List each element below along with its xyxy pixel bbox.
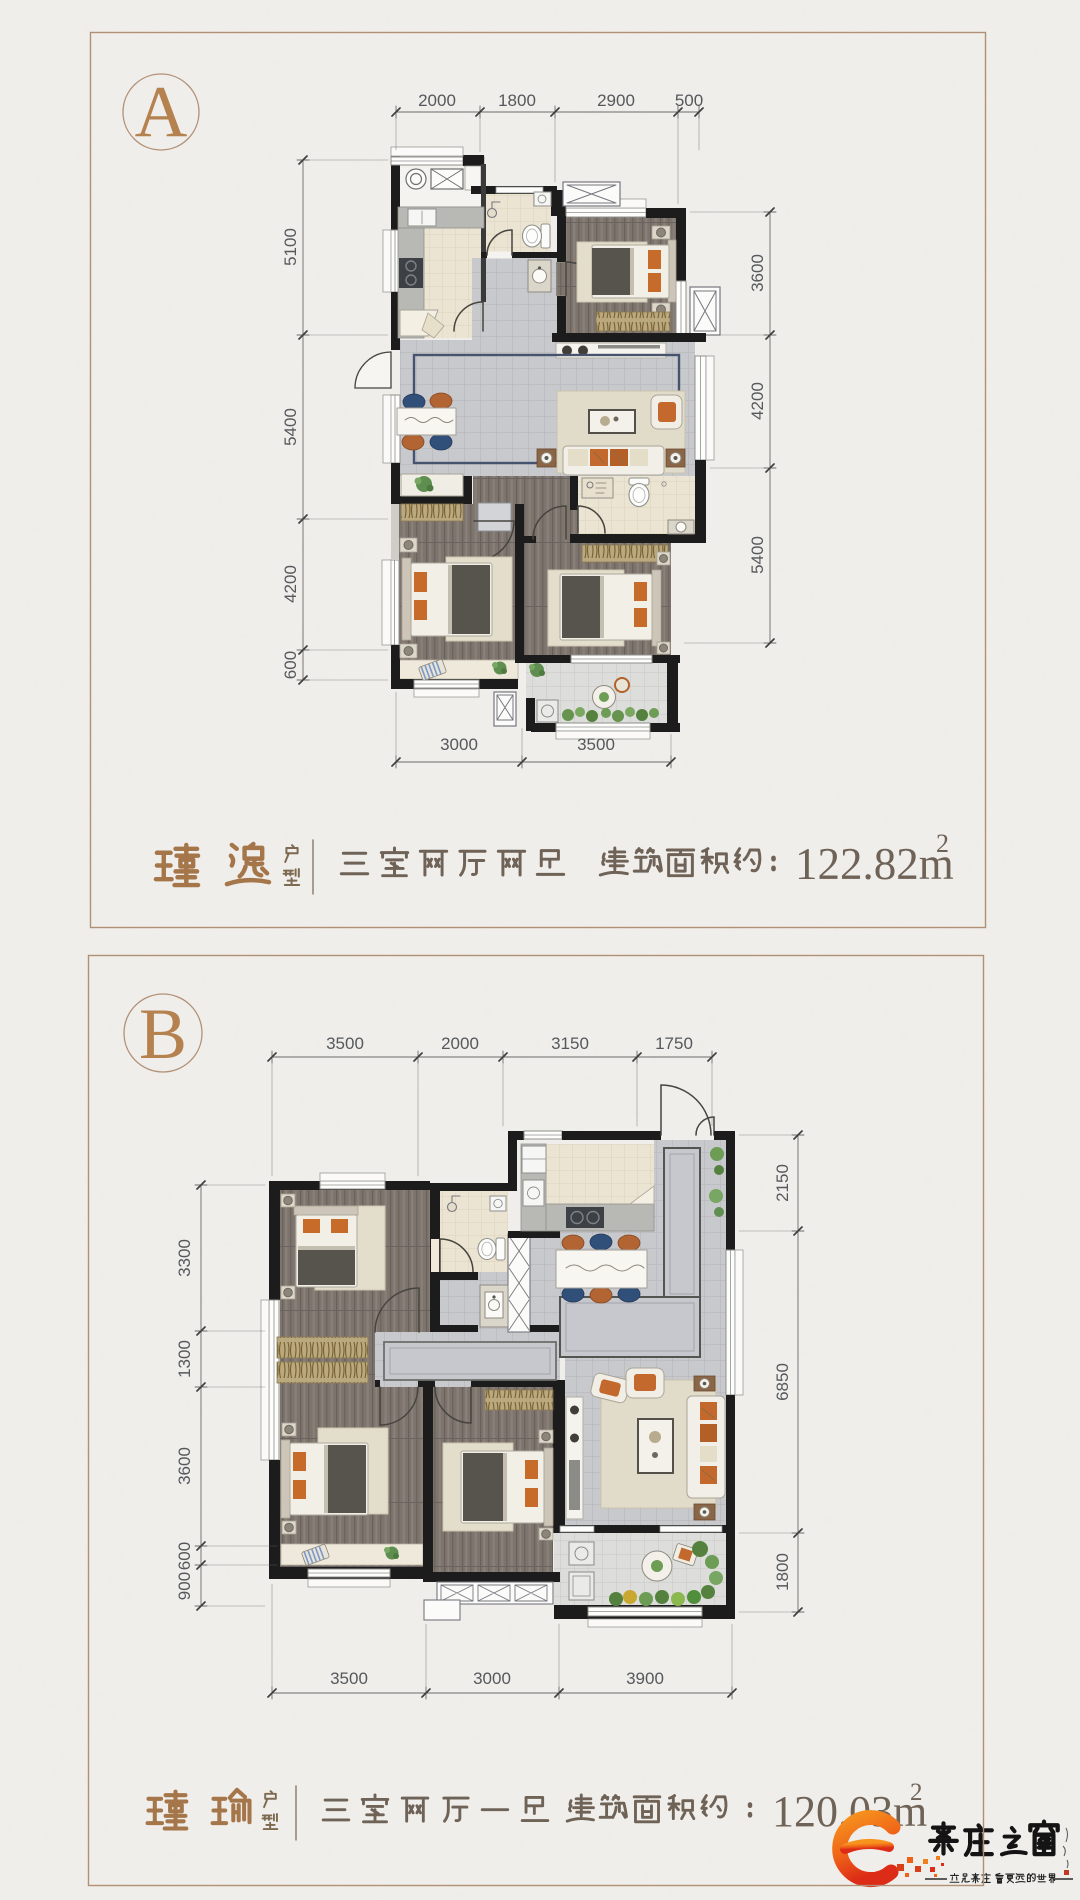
svg-text:4200: 4200 bbox=[748, 382, 767, 420]
svg-text:3600: 3600 bbox=[748, 254, 767, 292]
svg-text:2150: 2150 bbox=[773, 1164, 792, 1202]
svg-text:5400: 5400 bbox=[281, 408, 300, 446]
svg-text:3000: 3000 bbox=[440, 735, 478, 754]
svg-text:500: 500 bbox=[675, 91, 703, 110]
svg-text:600: 600 bbox=[281, 651, 300, 679]
svg-text:3150: 3150 bbox=[551, 1034, 589, 1053]
svg-text:2900: 2900 bbox=[597, 91, 635, 110]
svg-text:3500: 3500 bbox=[577, 735, 615, 754]
svg-text:2: 2 bbox=[910, 1779, 923, 1806]
svg-text:3500: 3500 bbox=[326, 1034, 364, 1053]
svg-text:1300: 1300 bbox=[175, 1340, 194, 1378]
svg-text:122.82m: 122.82m bbox=[795, 839, 954, 889]
svg-text:5100: 5100 bbox=[281, 228, 300, 266]
svg-text:1750: 1750 bbox=[655, 1034, 693, 1053]
svg-text:3000: 3000 bbox=[473, 1669, 511, 1688]
svg-text:900: 900 bbox=[175, 1572, 194, 1600]
svg-text:1800: 1800 bbox=[498, 91, 536, 110]
svg-text:6850: 6850 bbox=[773, 1363, 792, 1401]
svg-text:3900: 3900 bbox=[626, 1669, 664, 1688]
svg-text:5400: 5400 bbox=[748, 536, 767, 574]
svg-text:2: 2 bbox=[936, 829, 949, 858]
svg-text:3300: 3300 bbox=[175, 1239, 194, 1277]
svg-text:600: 600 bbox=[175, 1542, 194, 1570]
svg-text:3500: 3500 bbox=[330, 1669, 368, 1688]
svg-text:2000: 2000 bbox=[441, 1034, 479, 1053]
svg-text:1800: 1800 bbox=[773, 1553, 792, 1591]
svg-text:B: B bbox=[139, 994, 187, 1074]
svg-text:3600: 3600 bbox=[175, 1447, 194, 1485]
svg-text:A: A bbox=[135, 71, 188, 152]
svg-text:2000: 2000 bbox=[418, 91, 456, 110]
svg-text:4200: 4200 bbox=[281, 565, 300, 603]
